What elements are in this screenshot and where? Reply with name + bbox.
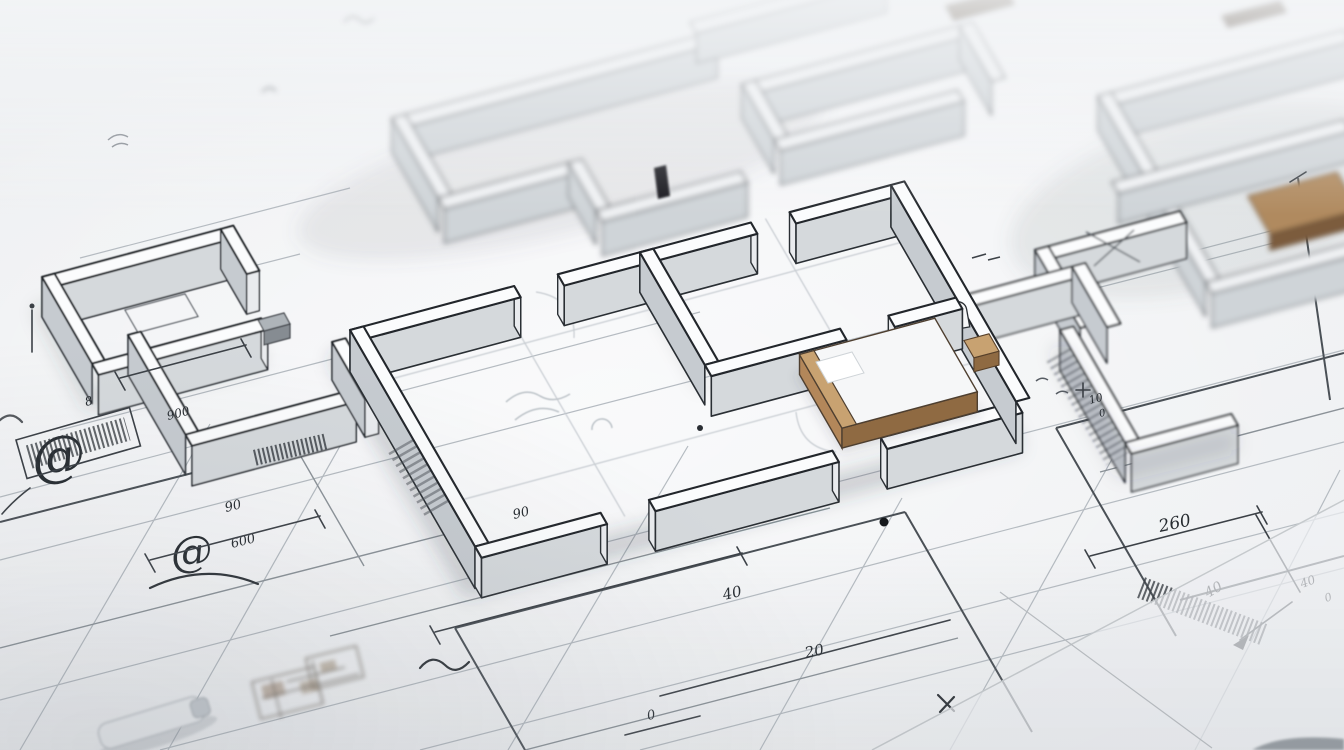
architectural-blueprint-photo: 900 8 @ @ 90 600 90 40 20 0 260 40 4 (0, 0, 1344, 750)
atmosphere-overlays (0, 0, 1344, 750)
scene-canvas: 900 8 @ @ 90 600 90 40 20 0 260 40 4 (0, 0, 1344, 750)
